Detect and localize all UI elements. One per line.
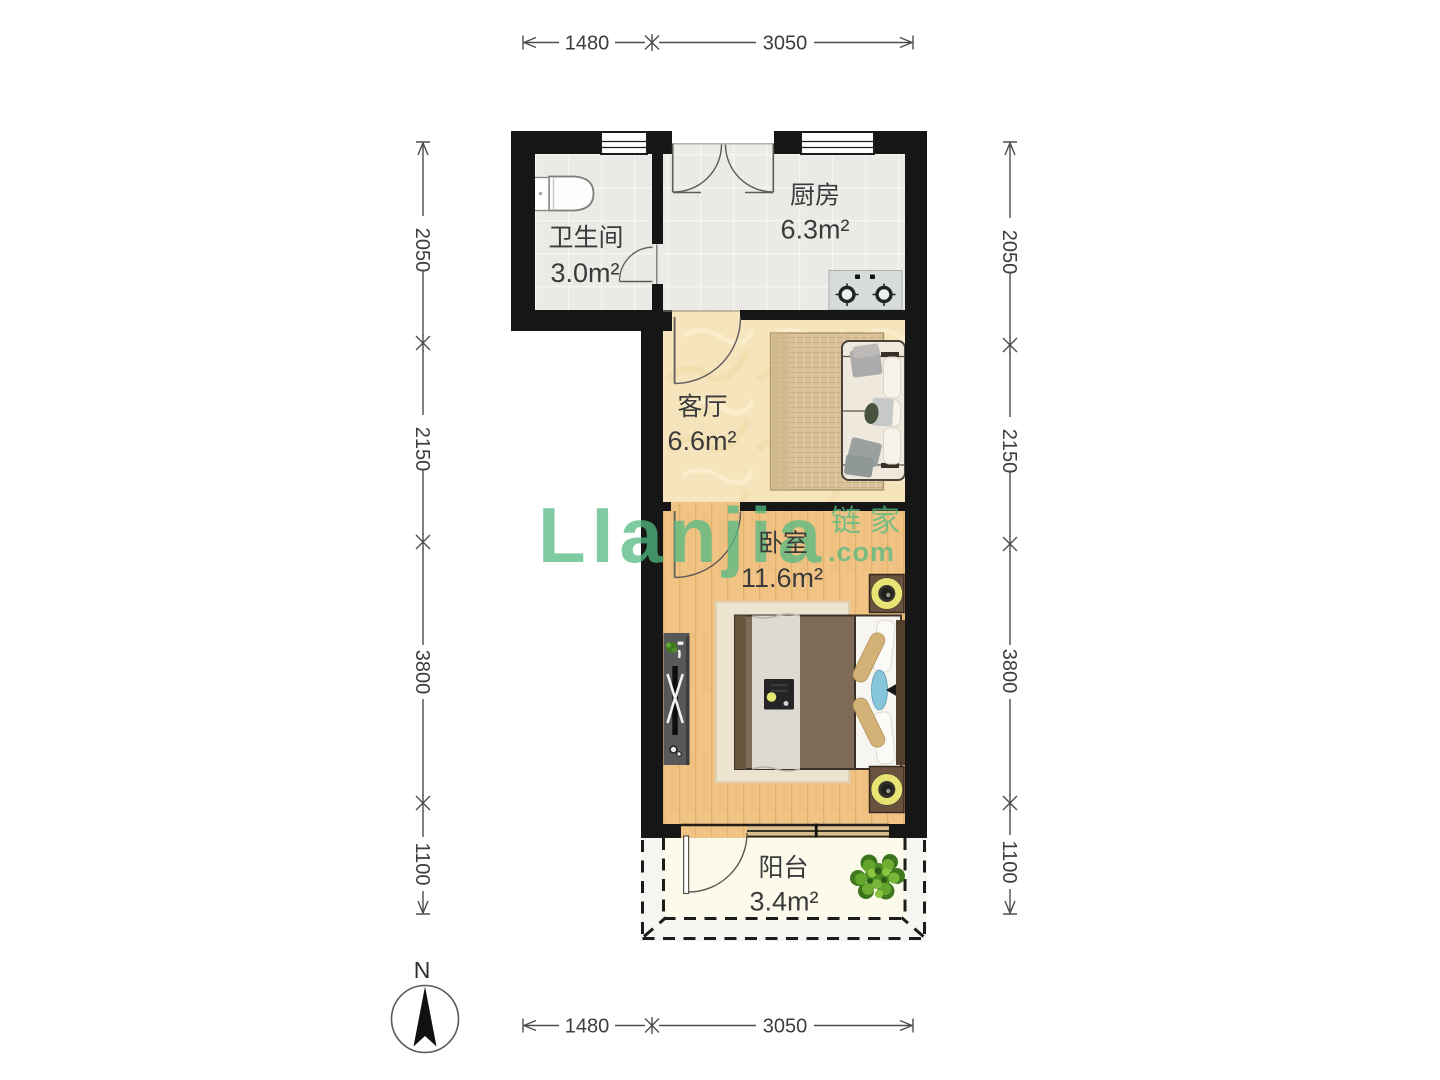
svg-text:6.6m²: 6.6m² bbox=[667, 426, 736, 456]
svg-text:3050: 3050 bbox=[763, 33, 808, 55]
svg-text:1100: 1100 bbox=[998, 840, 1020, 883]
svg-text:2150: 2150 bbox=[411, 427, 433, 472]
svg-text:3800: 3800 bbox=[411, 650, 433, 695]
svg-text:1100: 1100 bbox=[411, 842, 433, 885]
svg-text:卫生间: 卫生间 bbox=[548, 224, 623, 252]
svg-text:2050: 2050 bbox=[411, 228, 433, 273]
svg-text:3800: 3800 bbox=[998, 649, 1020, 694]
svg-text:1480: 1480 bbox=[565, 33, 610, 55]
svg-text:客厅: 客厅 bbox=[677, 393, 727, 421]
svg-text:N: N bbox=[414, 957, 431, 983]
svg-text:链家: 链家 bbox=[831, 505, 909, 538]
svg-text:3.4m²: 3.4m² bbox=[749, 887, 818, 917]
svg-text:.com: .com bbox=[828, 537, 895, 567]
svg-text:2150: 2150 bbox=[998, 429, 1020, 474]
svg-text:厨房: 厨房 bbox=[790, 182, 840, 210]
svg-text:3.0m²: 3.0m² bbox=[550, 258, 619, 288]
svg-text:11.6m²: 11.6m² bbox=[741, 563, 823, 593]
svg-text:1480: 1480 bbox=[565, 1016, 610, 1038]
svg-text:3050: 3050 bbox=[763, 1016, 808, 1038]
svg-text:阳台: 阳台 bbox=[758, 854, 808, 882]
svg-text:6.3m²: 6.3m² bbox=[780, 215, 849, 245]
svg-text:2050: 2050 bbox=[998, 230, 1020, 275]
svg-text:卧室: 卧室 bbox=[758, 530, 808, 558]
